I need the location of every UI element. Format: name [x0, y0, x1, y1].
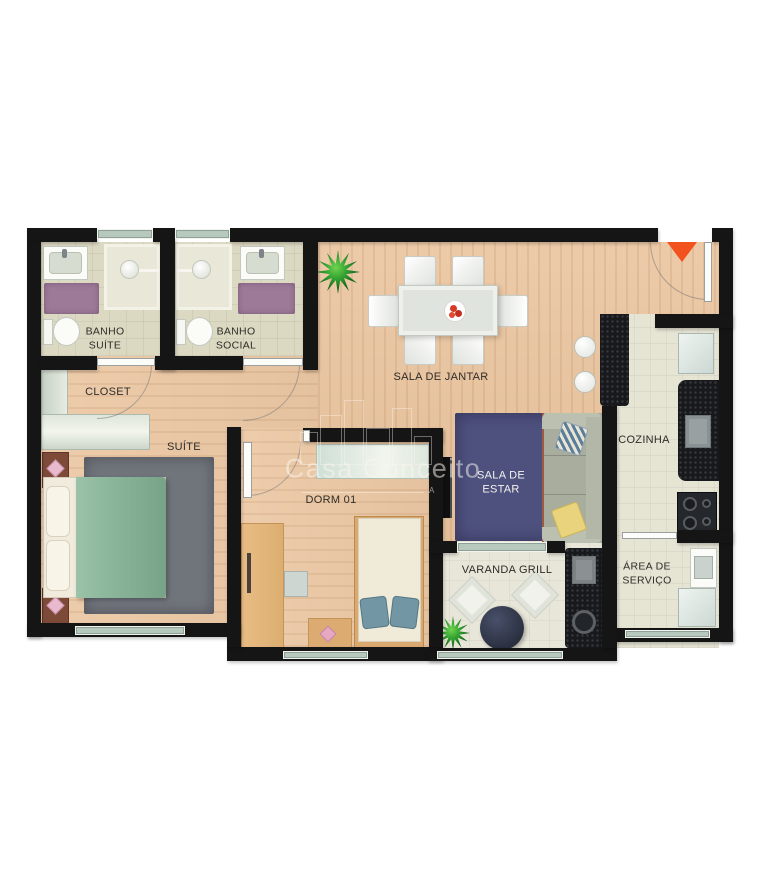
- fruit-icon: [455, 310, 462, 317]
- door-leaf: [243, 442, 252, 498]
- bath-rug: [44, 283, 99, 314]
- shower-arm: [138, 269, 160, 272]
- window: [175, 229, 230, 239]
- round-table: [480, 606, 524, 650]
- wall: [303, 242, 318, 370]
- room-label-cozinha: COZINHA: [618, 433, 670, 447]
- window: [97, 229, 153, 239]
- toilet-bowl: [186, 317, 213, 346]
- bath-rug: [238, 283, 295, 314]
- dining-chair: [404, 256, 436, 288]
- bed-pillow: [46, 540, 70, 591]
- wall: [27, 242, 41, 637]
- wall: [719, 242, 733, 642]
- bar-stool: [574, 371, 596, 393]
- sofa-seam: [544, 494, 586, 495]
- entrance-marker-icon: [667, 242, 697, 262]
- stove: [677, 492, 717, 534]
- window: [283, 651, 368, 659]
- toilet-tank: [176, 319, 186, 345]
- washing-machine: [678, 588, 716, 627]
- room-label-closet: CLOSET: [85, 385, 131, 399]
- fruit-icon: [449, 312, 455, 318]
- dining-chair: [404, 333, 436, 365]
- wall: [227, 427, 241, 647]
- bar-stool: [574, 336, 596, 358]
- room-label-varanda: VARANDA GRILL: [462, 563, 553, 577]
- plant-icon: [316, 250, 360, 294]
- room-label-banho-suite: BANHO SUÍTE: [86, 325, 125, 352]
- room-label-area-servico: ÁREA DE SERVIÇO: [622, 560, 671, 587]
- room-label-sala-de-estar: SALA DE ESTAR: [477, 469, 525, 498]
- wall: [160, 242, 175, 370]
- dining-chair: [497, 295, 528, 327]
- faucet-icon: [62, 249, 67, 258]
- room-label-suite: SUÍTE: [167, 440, 201, 454]
- bed-pillow-teal: [359, 595, 390, 629]
- bar-counter: [600, 314, 629, 406]
- wall: [41, 356, 97, 370]
- shower-head-icon: [120, 260, 139, 279]
- wall: [429, 541, 457, 553]
- wall: [655, 314, 733, 328]
- closet-cabinet-vertical: [41, 368, 68, 415]
- desk-handle: [247, 553, 251, 593]
- window: [75, 626, 185, 635]
- wall: [153, 228, 175, 242]
- faucet-icon: [259, 249, 264, 258]
- wall: [602, 406, 617, 648]
- toilet-bowl: [53, 317, 80, 346]
- grill-burner-icon: [572, 610, 596, 634]
- watermark-mark: A: [429, 486, 434, 495]
- side-shelf: [284, 571, 308, 597]
- wall: [155, 356, 243, 370]
- toilet-tank: [43, 319, 53, 345]
- burner-icon: [702, 517, 711, 526]
- sofa-backrest: [586, 417, 602, 539]
- dining-chair: [452, 256, 484, 288]
- watermark-line: [302, 492, 424, 493]
- room-label-sala-de-jantar: SALA DE JANTAR: [393, 370, 488, 384]
- dining-chair: [368, 295, 399, 327]
- dining-chair: [452, 333, 484, 365]
- wall: [712, 228, 733, 242]
- bed-blanket: [76, 477, 166, 598]
- window: [437, 651, 563, 659]
- burner-icon: [683, 497, 697, 511]
- sliding-glass-door: [457, 542, 547, 552]
- fridge: [678, 333, 714, 374]
- window: [625, 630, 710, 638]
- wall: [230, 228, 658, 242]
- bed-pillow: [46, 486, 70, 537]
- wall: [27, 228, 97, 242]
- door-leaf: [243, 358, 303, 366]
- burner-icon: [702, 499, 711, 508]
- door-leaf: [622, 532, 677, 539]
- laundry-sink-basin: [694, 556, 713, 579]
- room-label-dorm01: DORM 01: [306, 493, 357, 507]
- wall: [547, 541, 565, 553]
- wall: [677, 530, 733, 543]
- door-leaf: [704, 242, 712, 302]
- door-leaf: [97, 358, 155, 366]
- closet-cabinet-horizontal: [41, 414, 150, 450]
- grill-module: [572, 556, 596, 584]
- floor-plan-canvas: BANHO SUÍTE BANHO SOCIAL SALA DE JANTAR …: [0, 0, 768, 892]
- room-label-banho-social: BANHO SOCIAL: [216, 325, 256, 352]
- shower-head-icon: [192, 260, 211, 279]
- kitchen-sink: [685, 415, 711, 448]
- burner-icon: [683, 516, 697, 530]
- watermark-brand: Casa Conceito: [285, 454, 482, 485]
- bed-pillow-teal: [389, 595, 420, 629]
